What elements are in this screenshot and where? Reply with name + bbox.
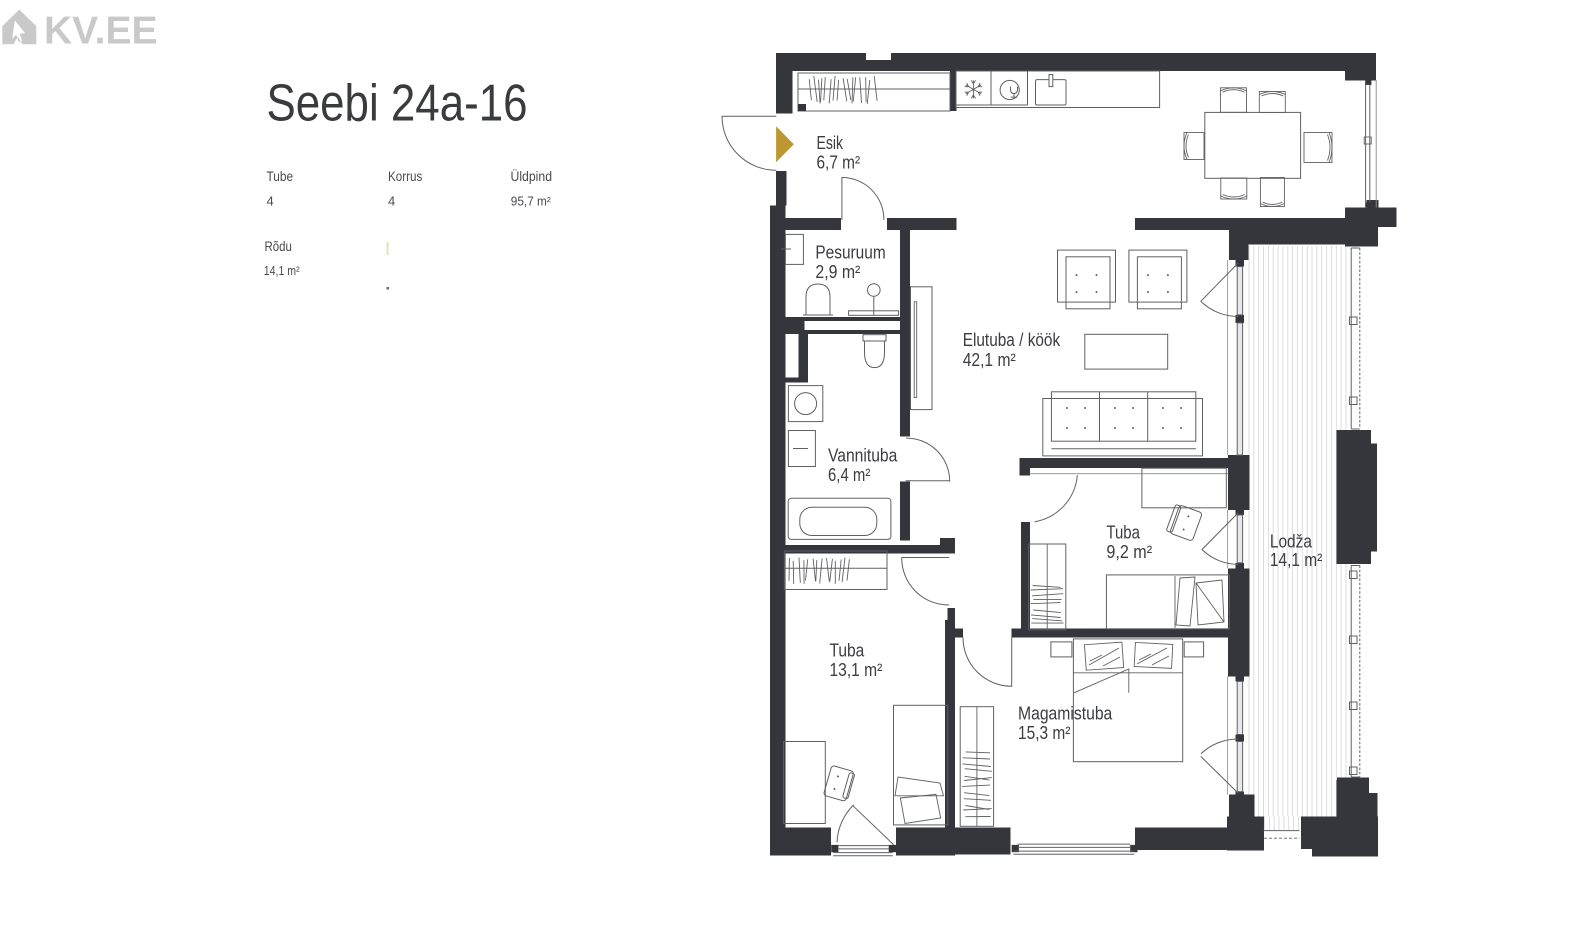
svg-text:Magamistuba: Magamistuba: [1018, 704, 1113, 724]
svg-text:Seebi 24a-16: Seebi 24a-16: [267, 75, 528, 133]
svg-text:Rõdu: Rõdu: [265, 239, 292, 254]
svg-text:15,3 m²: 15,3 m²: [1018, 723, 1070, 743]
svg-text:2,9 m²: 2,9 m²: [815, 262, 860, 282]
svg-text:13,1 m²: 13,1 m²: [830, 660, 883, 680]
svg-text:Pesuruum: Pesuruum: [815, 243, 885, 263]
svg-text:Korrus: Korrus: [388, 169, 423, 184]
svg-text:Esik: Esik: [817, 133, 844, 153]
svg-text:Elutuba / köök: Elutuba / köök: [963, 330, 1061, 350]
svg-text:4: 4: [388, 193, 395, 208]
svg-text:Lodža: Lodža: [1270, 531, 1313, 551]
svg-text:Tuba: Tuba: [1106, 522, 1140, 542]
svg-text:9,2 m²: 9,2 m²: [1106, 542, 1152, 562]
svg-text:Üldpind: Üldpind: [511, 169, 553, 184]
svg-text:14,1 m²: 14,1 m²: [264, 263, 300, 278]
svg-text:95,7 m²: 95,7 m²: [511, 193, 552, 208]
svg-text:Tuba: Tuba: [830, 640, 866, 660]
svg-text:4: 4: [267, 193, 274, 208]
svg-text:42,1 m²: 42,1 m²: [963, 350, 1016, 370]
svg-text:Vannituba: Vannituba: [828, 446, 898, 466]
svg-text:6,4 m²: 6,4 m²: [828, 465, 870, 485]
svg-text:6,7 m²: 6,7 m²: [817, 152, 861, 172]
svg-text:14,1 m²: 14,1 m²: [1270, 550, 1322, 570]
svg-text:Tube: Tube: [267, 169, 294, 184]
svg-text:KV.EE: KV.EE: [44, 10, 158, 53]
